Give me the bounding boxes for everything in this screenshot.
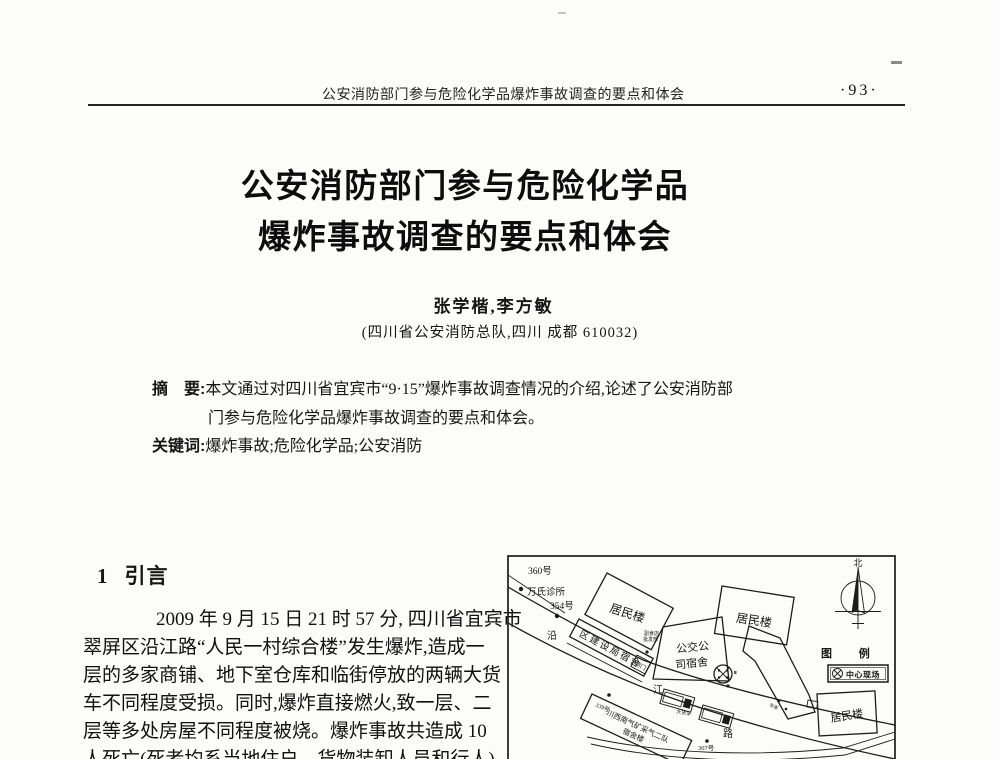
compass-north-label: 北: [853, 558, 862, 568]
poi-label-wanshi: 万氏诊所: [527, 586, 566, 598]
body-line: 翠屏区沿江路“人民一村综合楼”发生爆炸,造成一: [83, 634, 480, 662]
legend-label: 中心现场: [846, 670, 880, 680]
article-title: 公安消防部门参与危险化学品 爆炸事故调查的要点和体会: [0, 160, 930, 262]
keywords: 爆炸事故;危险化学品;公安消防: [205, 438, 422, 455]
shop-label: 副食店: [644, 630, 659, 637]
truck-2: [699, 705, 734, 728]
building-label: 司宿舍: [674, 654, 708, 671]
poi-label-354: 354号: [550, 601, 574, 612]
section-heading: 1引言: [97, 560, 169, 590]
poi-label-307: 307号: [698, 744, 715, 752]
building-label: 居民楼: [735, 610, 773, 630]
building-label: 居民楼: [608, 600, 647, 625]
abstract-text-1: 本文通过对四川省宜宾市“9·15”爆炸事故调查情况的介绍,论述了公安消防部: [205, 381, 733, 398]
poi-dot: [607, 693, 611, 697]
abstract-text-2: 门参与危险化学品爆炸事故调查的要点和体会。: [152, 405, 870, 434]
building-residential-2: 居民楼: [714, 586, 794, 645]
section-number: 1: [97, 564, 109, 588]
legend-title: 图 例: [821, 646, 882, 660]
scan-speck: [558, 12, 566, 14]
shop-label: 批发部: [643, 636, 658, 643]
poi-dot: [778, 700, 781, 703]
title-line-2: 爆炸事故调查的要点和体会: [0, 211, 930, 262]
poi-label-339: 339号: [594, 701, 611, 714]
scan-speck: [891, 61, 902, 64]
page-number: ·93·: [840, 82, 879, 100]
building-label: 公交公: [675, 638, 709, 655]
legend-symbol-icon: [833, 669, 843, 679]
scanned-paper-page: 公安消防部门参与危险化学品爆炸事故调查的要点和体会 ·93· 公安消防部门参与危…: [0, 0, 1000, 759]
body-line: 车不同程度受损。同时,爆炸直接燃火,致一层、二: [83, 690, 480, 718]
abstract-block: 摘 要:本文通过对四川省宜宾市“9·15”爆炸事故调查情况的介绍,论述了公安消防…: [152, 376, 870, 462]
poi-label-360: 360号: [528, 566, 552, 577]
truck-label: 大货车: [676, 708, 692, 718]
affiliation: (四川省公安消防总队,四川 成都 610032): [0, 321, 1000, 342]
garage-label: 车库: [768, 701, 780, 711]
keywords-row: 关键词:爆炸事故;危险化学品;公安消防: [152, 433, 870, 462]
section-title: 引言: [125, 564, 169, 588]
running-title: 公安消防部门参与危险化学品爆炸事故调查的要点和体会: [322, 84, 685, 104]
poi-dot: [555, 614, 559, 618]
poi-dot: [785, 708, 788, 711]
title-line-1: 公安消防部门参与危险化学品: [0, 160, 930, 211]
road-label: 路: [723, 727, 733, 740]
poi-dot: [519, 587, 523, 591]
building-label: 居民楼: [829, 706, 864, 725]
keywords-label: 关键词:: [152, 438, 205, 455]
body-line: 2009 年 9 月 15 日 21 时 57 分, 四川省宜宾市: [83, 606, 480, 634]
authors: 张学楷,李方敏: [0, 292, 987, 317]
building-residential-3: 居民楼: [817, 691, 877, 736]
body-line: 层的多家商铺、地下室仓库和临街停放的两辆大货: [83, 662, 480, 690]
body-line: 人死亡(死者均系当地住户、货物装卸人员和行人): [83, 746, 480, 759]
header-rule: [88, 104, 905, 106]
north-compass-icon: 北: [835, 558, 881, 629]
abstract-label: 摘 要:: [152, 381, 205, 398]
poi-dot: [705, 739, 709, 743]
abstract-row-1: 摘 要:本文通过对四川省宜宾市“9·15”爆炸事故调查情况的介绍,论述了公安消防…: [152, 376, 870, 405]
legend-box: 中心现场: [828, 665, 888, 682]
road-label: 江: [653, 684, 663, 696]
poi-dot: [645, 650, 648, 653]
road-label: 沿: [547, 630, 557, 642]
map-figure: 沿 江 路 居民楼 区建设局宿舍 侧门 公交公 司宿舍 居民楼 居民楼: [503, 553, 903, 759]
body-line: 层等多处房屋不同程度被烧。爆炸事故共造成 10: [83, 718, 480, 746]
body-paragraph: 2009 年 9 月 15 日 21 时 57 分, 四川省宜宾市 翠屏区沿江路…: [83, 606, 480, 759]
